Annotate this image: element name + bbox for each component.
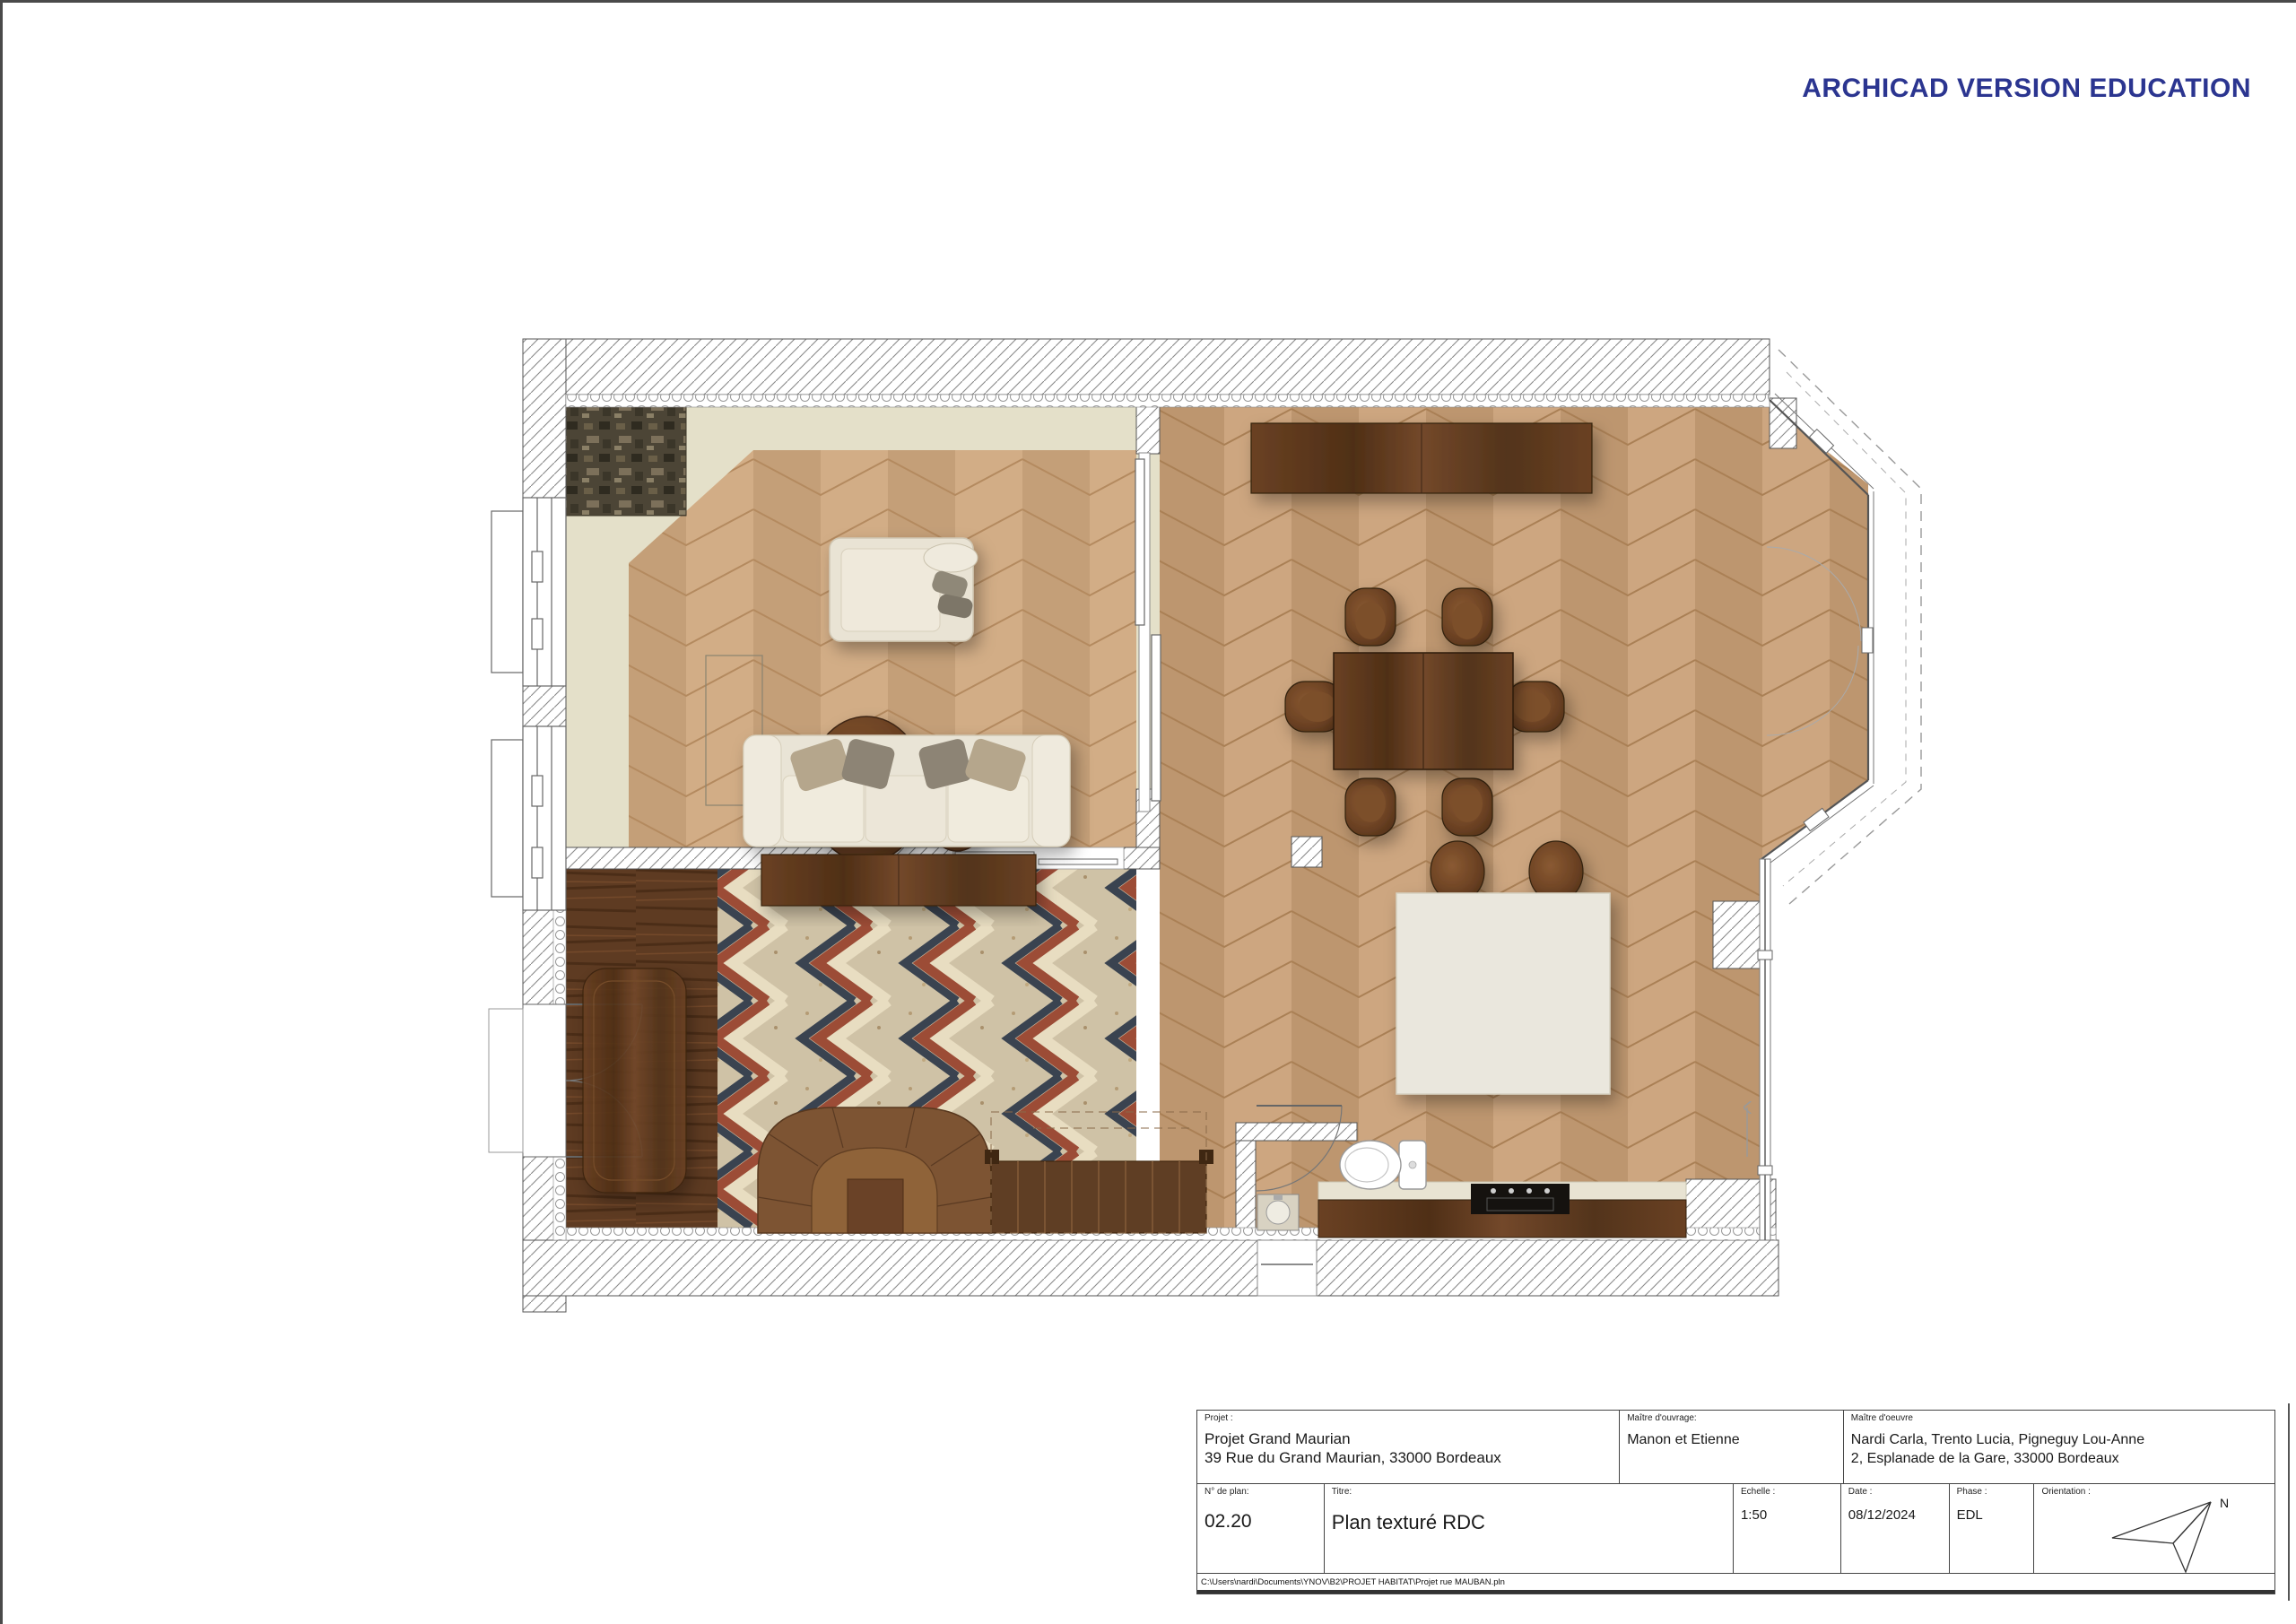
hall-bench xyxy=(583,968,686,1193)
architect-label: Maître d'oeuvre xyxy=(1851,1413,2267,1423)
client-cell: Maître d'ouvrage: Manon et Etienne xyxy=(1620,1411,1844,1483)
client-label: Maître d'ouvrage: xyxy=(1627,1413,1836,1423)
wall-living-hall-end xyxy=(1124,847,1160,869)
scale-label: Echelle : xyxy=(1741,1487,1833,1497)
file-path-bar: C:\Users\nardi\Documents\YNOV\B2\PROJET … xyxy=(1197,1574,2274,1594)
wall-bay-bottom-junction xyxy=(1713,901,1762,968)
chaise-longue xyxy=(830,538,978,641)
floor-plan-svg xyxy=(484,323,1937,1327)
sheet-border-right xyxy=(2288,1403,2290,1601)
window-box-2 xyxy=(491,740,523,897)
fireplace xyxy=(566,398,686,516)
project-address: 39 Rue du Grand Maurian, 33000 Bordeaux xyxy=(1205,1448,1612,1467)
wc-sink xyxy=(1257,1194,1299,1230)
wall-bottom xyxy=(523,1240,1779,1296)
sheet-border-left xyxy=(0,0,3,1624)
scale-cell: Echelle : 1:50 xyxy=(1734,1484,1841,1573)
date-label: Date : xyxy=(1848,1487,1942,1497)
post xyxy=(1291,837,1322,867)
orientation-cell: Orientation : N xyxy=(2034,1484,2274,1573)
north-letter: N xyxy=(2220,1496,2229,1510)
phase-value: EDL xyxy=(1957,1507,2027,1523)
floor-plan xyxy=(484,323,1937,1327)
plan-number-value: 02.20 xyxy=(1205,1511,1317,1533)
client-name: Manon et Etienne xyxy=(1627,1431,1836,1450)
plan-number-label: N° de plan: xyxy=(1205,1487,1317,1497)
entry-step xyxy=(489,1009,523,1152)
phase-cell: Phase : EDL xyxy=(1950,1484,2035,1573)
file-path: C:\Users\nardi\Documents\YNOV\B2\PROJET … xyxy=(1201,1577,1505,1587)
entry-door-opening xyxy=(523,1004,566,1157)
architect-address: 2, Esplanade de la Gare, 33000 Bordeaux xyxy=(1851,1450,2267,1469)
sofa xyxy=(744,735,1070,847)
plan-number-cell: N° de plan: 02.20 xyxy=(1197,1484,1325,1573)
title-block-row-2: N° de plan: 02.20 Titre: Plan texturé RD… xyxy=(1197,1484,2274,1574)
window-1 xyxy=(523,498,566,686)
phase-label: Phase : xyxy=(1957,1487,2027,1497)
date-value: 08/12/2024 xyxy=(1848,1507,1942,1523)
title-block: Projet : Projet Grand Maurian 39 Rue du … xyxy=(1196,1410,2275,1594)
drawing-title-value: Plan texturé RDC xyxy=(1332,1511,1726,1534)
scale-value: 1:50 xyxy=(1741,1507,1833,1523)
insulation-top xyxy=(566,395,1770,407)
toilet xyxy=(1340,1141,1426,1189)
wall-wc-top xyxy=(1236,1123,1357,1141)
sideboard xyxy=(1251,423,1592,493)
stair-newel-1 xyxy=(985,1150,999,1164)
sheet-border-top xyxy=(0,0,2296,3)
project-name: Projet Grand Maurian xyxy=(1205,1429,1612,1448)
wall-top xyxy=(523,339,1770,395)
window-2 xyxy=(523,726,566,910)
stair-center xyxy=(848,1179,903,1233)
sheet: { "banner": { "text": "ARCHICAD VERSION … xyxy=(0,0,2296,1624)
project-cell: Projet : Projet Grand Maurian 39 Rue du … xyxy=(1197,1411,1620,1483)
drawing-title-cell: Titre: Plan texturé RDC xyxy=(1325,1484,1734,1573)
north-arrow-icon: N xyxy=(2101,1491,2258,1573)
architect-cell: Maître d'oeuvre Nardi Carla, Trento Luci… xyxy=(1844,1411,2274,1483)
archicad-education-banner: ARCHICAD VERSION EDUCATION xyxy=(1802,74,2251,104)
date-cell: Date : 08/12/2024 xyxy=(1841,1484,1950,1573)
title-block-row-1: Projet : Projet Grand Maurian 39 Rue du … xyxy=(1197,1411,2274,1484)
kitchen-island xyxy=(1396,893,1610,1094)
cooktop xyxy=(1471,1184,1570,1214)
drawing-title-label: Titre: xyxy=(1332,1487,1726,1497)
kitchen-counter xyxy=(1318,1182,1686,1238)
window-box-1 xyxy=(491,511,523,673)
rear-door-opening xyxy=(1257,1240,1317,1296)
architect-names: Nardi Carla, Trento Lucia, Pigneguy Lou-… xyxy=(1851,1431,2267,1450)
project-label: Projet : xyxy=(1205,1413,1612,1423)
hall-console xyxy=(761,855,1036,906)
